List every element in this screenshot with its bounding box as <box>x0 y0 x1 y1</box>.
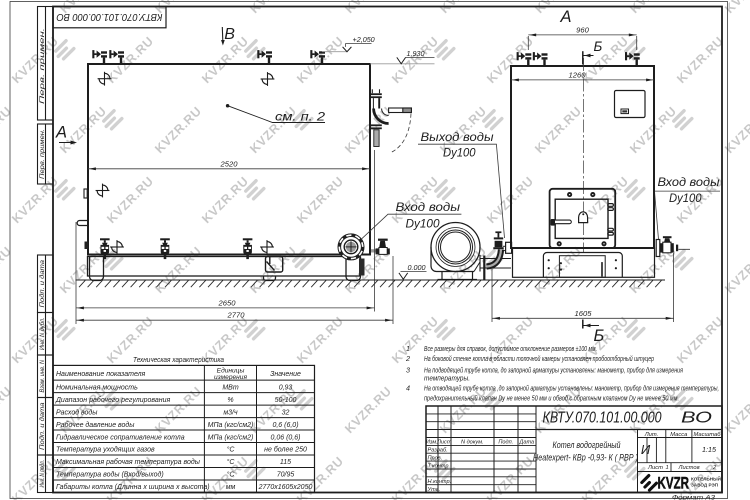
svg-text:Подп.: Подп. <box>498 439 513 445</box>
svg-text:960: 960 <box>576 25 589 34</box>
svg-text:4: 4 <box>406 384 410 393</box>
svg-text:+2,050: +2,050 <box>353 35 375 44</box>
svg-text:1: 1 <box>406 344 410 353</box>
svg-text:Т.контр.: Т.контр. <box>428 463 451 469</box>
svg-text:МВт: МВт <box>222 384 239 391</box>
svg-text:Перв. примен.: Перв. примен. <box>39 129 46 179</box>
svg-text:Подп. и дата: Подп. и дата <box>39 402 46 450</box>
svg-text:Рабочее давление воды: Рабочее давление воды <box>56 421 135 429</box>
svg-text:2520: 2520 <box>220 160 239 169</box>
svg-text:Н.контр.: Н.контр. <box>428 479 452 485</box>
svg-text:50-100: 50-100 <box>275 397 297 404</box>
svg-text:МПа (кгс/см2): МПа (кгс/см2) <box>208 434 254 441</box>
svg-text:На боковой стенке котла в обла: На боковой стенке котла в области топочн… <box>424 354 654 363</box>
svg-text:KVZR: KVZR <box>658 474 690 493</box>
svg-text:КВТУ.070.101.00.000: КВТУ.070.101.00.000 <box>543 409 662 426</box>
svg-text:Гидравлическое сопративление к: Гидравлическое сопративление котла <box>56 433 185 441</box>
svg-text:Номинальная мощность: Номинальная мощность <box>56 384 138 391</box>
svg-text:Лист: Лист <box>647 465 663 471</box>
svg-text:А: А <box>560 8 572 26</box>
svg-text:КОТЕЛЬНЫЙ: КОТЕЛЬНЫЙ <box>691 475 721 482</box>
svg-text:0,6 (6,0): 0,6 (6,0) <box>272 422 298 429</box>
svg-text:температуры.: температуры. <box>424 373 470 382</box>
svg-text:Подп. и дата: Подп. и дата <box>39 259 46 307</box>
svg-text:70/95: 70/95 <box>277 472 295 479</box>
svg-text:3: 3 <box>406 365 410 374</box>
svg-text:0.000: 0.000 <box>408 263 426 272</box>
svg-text:Взам. инв. N: Взам. инв. N <box>39 360 46 393</box>
svg-text:Б: Б <box>594 327 605 345</box>
svg-text:ВО: ВО <box>681 409 712 426</box>
svg-text:2650: 2650 <box>218 298 237 307</box>
svg-text:Габариты котла (Длинна х ширин: Габариты котла (Длинна х ширина х высота… <box>56 483 210 491</box>
svg-text:мм: мм <box>226 484 236 491</box>
svg-text:Б: Б <box>594 39 603 54</box>
svg-text:Техническая характеристика: Техническая характеристика <box>133 355 224 364</box>
svg-text:°С: °С <box>227 458 236 466</box>
svg-text:%: % <box>227 397 233 404</box>
svg-text:0,06 (0,6): 0,06 (0,6) <box>271 434 301 441</box>
svg-text:измерения: измерения <box>214 374 247 381</box>
svg-text:Формат А3: Формат А3 <box>672 495 715 500</box>
svg-text:Все размеры для справок, допус: Все размеры для справок, допустимое откл… <box>424 344 597 353</box>
svg-text:И: И <box>641 442 651 457</box>
svg-text:2770: 2770 <box>227 311 246 320</box>
svg-text:Расход воды: Расход воды <box>56 408 98 416</box>
svg-text:Dy100: Dy100 <box>669 191 702 205</box>
svg-text:Вход воды: Вход воды <box>396 200 461 214</box>
svg-text:2770х1605х2050: 2770х1605х2050 <box>258 484 313 491</box>
svg-text:1: 1 <box>666 465 669 471</box>
svg-text:Инв. N дубл.: Инв. N дубл. <box>39 318 46 351</box>
svg-text:Лит.: Лит. <box>644 432 659 438</box>
svg-text:м3/ч: м3/ч <box>223 409 238 416</box>
svg-text:°С: °С <box>227 471 236 479</box>
svg-text:Пров.: Пров. <box>428 456 443 462</box>
svg-text:Утв.: Утв. <box>427 487 441 493</box>
svg-text:Значение: Значение <box>270 371 301 378</box>
svg-text:КВТУ.070.101.00.000 ВО: КВТУ.070.101.00.000 ВО <box>56 11 162 22</box>
svg-text:Изм.: Изм. <box>426 439 438 445</box>
svg-text:Dy100: Dy100 <box>406 217 440 231</box>
svg-text:ЗАВОД РЭП: ЗАВОД РЭП <box>691 483 718 488</box>
svg-text:1260: 1260 <box>569 71 587 80</box>
svg-text:Наименование показателя: Наименование показателя <box>56 371 146 378</box>
svg-text:Листов: Листов <box>678 465 700 471</box>
svg-text:предохранительный клапан Dу н: предохранительный клапан Dу не менее 50 … <box>424 394 679 403</box>
svg-text:Перв. примен.: Перв. примен. <box>39 28 46 104</box>
svg-text:Котел водогрейный: Котел водогрейный <box>553 439 622 450</box>
svg-text:1605: 1605 <box>575 309 593 318</box>
svg-text:115: 115 <box>280 459 291 466</box>
svg-text:N докум.: N докум. <box>461 439 484 445</box>
svg-text:°С: °С <box>227 446 236 454</box>
svg-text:Dy100: Dy100 <box>443 146 476 160</box>
svg-text:см. п. 2: см. п. 2 <box>275 110 325 124</box>
svg-text:Диапазон рабочего регулировани: Диапазон рабочего регулирования <box>55 396 171 404</box>
svg-text:В: В <box>224 26 235 43</box>
svg-text:0,93: 0,93 <box>279 384 293 391</box>
svg-text:2: 2 <box>405 354 410 363</box>
svg-text:А: А <box>55 124 67 142</box>
svg-text:Инв. N подл.: Инв. N подл. <box>39 460 46 488</box>
svg-text:Масса: Масса <box>670 432 688 438</box>
svg-text:Температура уходящих газов: Температура уходящих газов <box>56 446 155 454</box>
svg-text:не более 250: не более 250 <box>264 446 307 454</box>
svg-text:На отводящей трубе котла ,до з: На отводящей трубе котла ,до запорной ар… <box>424 384 719 393</box>
svg-text:Выход воды: Выход воды <box>421 130 494 144</box>
svg-text:Максимальная рабочая температу: Максимальная рабочая температура воды <box>56 458 201 466</box>
svg-text:32: 32 <box>282 409 290 416</box>
svg-text:Дата: Дата <box>518 439 534 445</box>
svg-text:Вход воды: Вход воды <box>658 175 720 189</box>
svg-text:Температура воды (Вход/выход): Температура воды (Вход/выход) <box>56 471 164 479</box>
svg-text:Лист: Лист <box>436 439 452 445</box>
svg-text:Разраб.: Разраб. <box>428 448 448 454</box>
svg-text:1:15: 1:15 <box>702 445 717 454</box>
svg-text:Масштаб: Масштаб <box>693 432 721 438</box>
svg-text:Heatexpert- КВр -0,93- К ( РВР: Heatexpert- КВр -0,93- К ( РВР ) <box>533 452 638 463</box>
svg-text:МПа (кгс/см2): МПа (кгс/см2) <box>208 422 254 429</box>
svg-text:1,930: 1,930 <box>407 49 425 58</box>
